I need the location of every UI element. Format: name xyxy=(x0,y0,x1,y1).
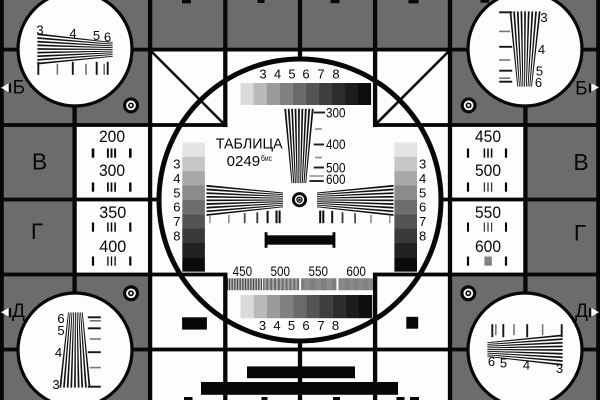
svg-text:5: 5 xyxy=(500,356,507,371)
svg-text:Д: Д xyxy=(12,301,25,322)
svg-text:Д: Д xyxy=(575,301,588,322)
svg-text:500: 500 xyxy=(271,263,291,279)
svg-text:600: 600 xyxy=(346,263,366,279)
svg-text:600: 600 xyxy=(326,171,346,187)
svg-text:Г: Г xyxy=(31,219,43,244)
svg-text:6: 6 xyxy=(419,200,426,215)
svg-text:600: 600 xyxy=(475,238,501,256)
svg-text:6: 6 xyxy=(104,30,111,45)
svg-text:550: 550 xyxy=(475,204,501,222)
svg-text:6: 6 xyxy=(302,66,309,81)
svg-text:5: 5 xyxy=(57,323,64,338)
svg-text:4: 4 xyxy=(274,66,281,81)
svg-text:4: 4 xyxy=(69,26,76,41)
svg-text:6: 6 xyxy=(488,354,495,369)
svg-text:5: 5 xyxy=(173,185,180,200)
svg-text:3: 3 xyxy=(556,361,563,376)
svg-text:4: 4 xyxy=(55,345,62,360)
svg-text:3: 3 xyxy=(36,23,43,38)
svg-text:4: 4 xyxy=(419,171,426,186)
svg-text:3: 3 xyxy=(173,157,180,172)
svg-text:3: 3 xyxy=(52,377,59,392)
svg-text:3: 3 xyxy=(259,318,266,333)
svg-text:200: 200 xyxy=(99,128,125,146)
svg-text:3: 3 xyxy=(419,157,426,172)
svg-text:6: 6 xyxy=(535,75,542,90)
svg-text:350: 350 xyxy=(99,204,126,222)
svg-text:5: 5 xyxy=(93,28,100,43)
svg-text:4: 4 xyxy=(173,171,180,186)
svg-text:550: 550 xyxy=(308,263,328,279)
svg-text:6: 6 xyxy=(302,318,309,333)
svg-text:6: 6 xyxy=(173,200,180,215)
svg-text:5: 5 xyxy=(288,66,295,81)
svg-text:3: 3 xyxy=(259,66,266,81)
svg-text:Б: Б xyxy=(13,78,25,99)
svg-text:7: 7 xyxy=(419,214,426,229)
svg-text:0249: 0249 xyxy=(227,153,261,170)
svg-text:400: 400 xyxy=(326,136,346,152)
svg-text:Г: Г xyxy=(574,220,586,245)
svg-text:300: 300 xyxy=(99,162,125,180)
svg-text:В: В xyxy=(573,149,588,175)
svg-text:4: 4 xyxy=(538,42,545,57)
svg-text:5: 5 xyxy=(419,185,426,200)
svg-text:300: 300 xyxy=(326,104,346,120)
svg-text:В: В xyxy=(32,149,47,175)
svg-text:400: 400 xyxy=(99,238,126,256)
svg-text:ТАБЛИЦА: ТАБЛИЦА xyxy=(216,135,283,152)
svg-text:8: 8 xyxy=(332,66,339,81)
svg-text:4: 4 xyxy=(523,358,530,373)
svg-text:7: 7 xyxy=(173,214,180,229)
svg-text:4: 4 xyxy=(273,318,280,333)
svg-text:8: 8 xyxy=(332,318,339,333)
svg-text:5: 5 xyxy=(288,318,295,333)
svg-text:450: 450 xyxy=(233,263,253,279)
svg-text:3: 3 xyxy=(540,10,547,25)
svg-text:450: 450 xyxy=(475,128,501,146)
svg-text:7: 7 xyxy=(317,318,324,333)
svg-text:Б: Б xyxy=(575,78,587,99)
svg-text:7: 7 xyxy=(317,66,324,81)
svg-text:8: 8 xyxy=(419,228,426,243)
svg-text:бис: бис xyxy=(261,154,272,163)
svg-text:500: 500 xyxy=(475,162,501,180)
svg-text:8: 8 xyxy=(173,228,180,243)
